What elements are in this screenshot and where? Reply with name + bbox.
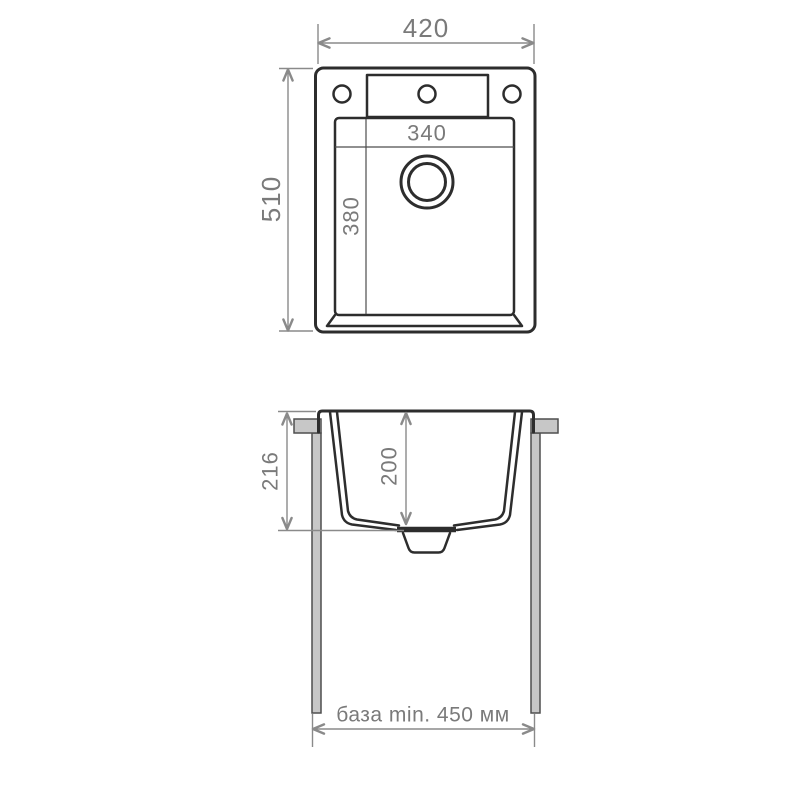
drain-inner-ring (409, 164, 446, 201)
sink-rim-profile (319, 411, 534, 432)
side-view: 216 200 база min. 450 мм (258, 411, 559, 747)
dimension-label-340: 340 (407, 121, 447, 146)
mounting-clamp-left (294, 419, 321, 433)
faucet-hole-right (504, 86, 521, 103)
dimension-overall-depth: 510 (256, 69, 313, 332)
drain-top-view (401, 156, 453, 208)
drain-trap-cup (403, 533, 450, 553)
mounting-clamp-right (531, 419, 558, 433)
dimension-cabinet-base: база min. 450 мм (313, 704, 535, 748)
cabinet-side-panel-right (531, 433, 540, 713)
faucet-deck (367, 75, 488, 117)
dimension-label-200: 200 (377, 446, 402, 486)
dimension-label-216: 216 (258, 451, 283, 491)
dimension-label-510: 510 (256, 176, 286, 222)
cabinet-side-panel-left (312, 433, 321, 713)
dimension-label-base-450: база min. 450 мм (336, 704, 509, 727)
bowl-bottom-bevel (327, 315, 522, 326)
sink-dimension-diagram: 420 510 340 380 (0, 0, 800, 800)
sink-technical-drawing-page: 420 510 340 380 (0, 0, 800, 800)
dimension-overall-width: 420 (318, 13, 534, 64)
dimension-label-420: 420 (403, 13, 449, 43)
dimension-bowl-depth: 200 (377, 414, 407, 524)
bowl-wall-inner-right (454, 412, 515, 526)
faucet-hole-left (334, 86, 351, 103)
faucet-hole-center (419, 86, 436, 103)
dimension-label-380: 380 (339, 196, 364, 236)
top-view: 420 510 340 380 (256, 13, 535, 332)
